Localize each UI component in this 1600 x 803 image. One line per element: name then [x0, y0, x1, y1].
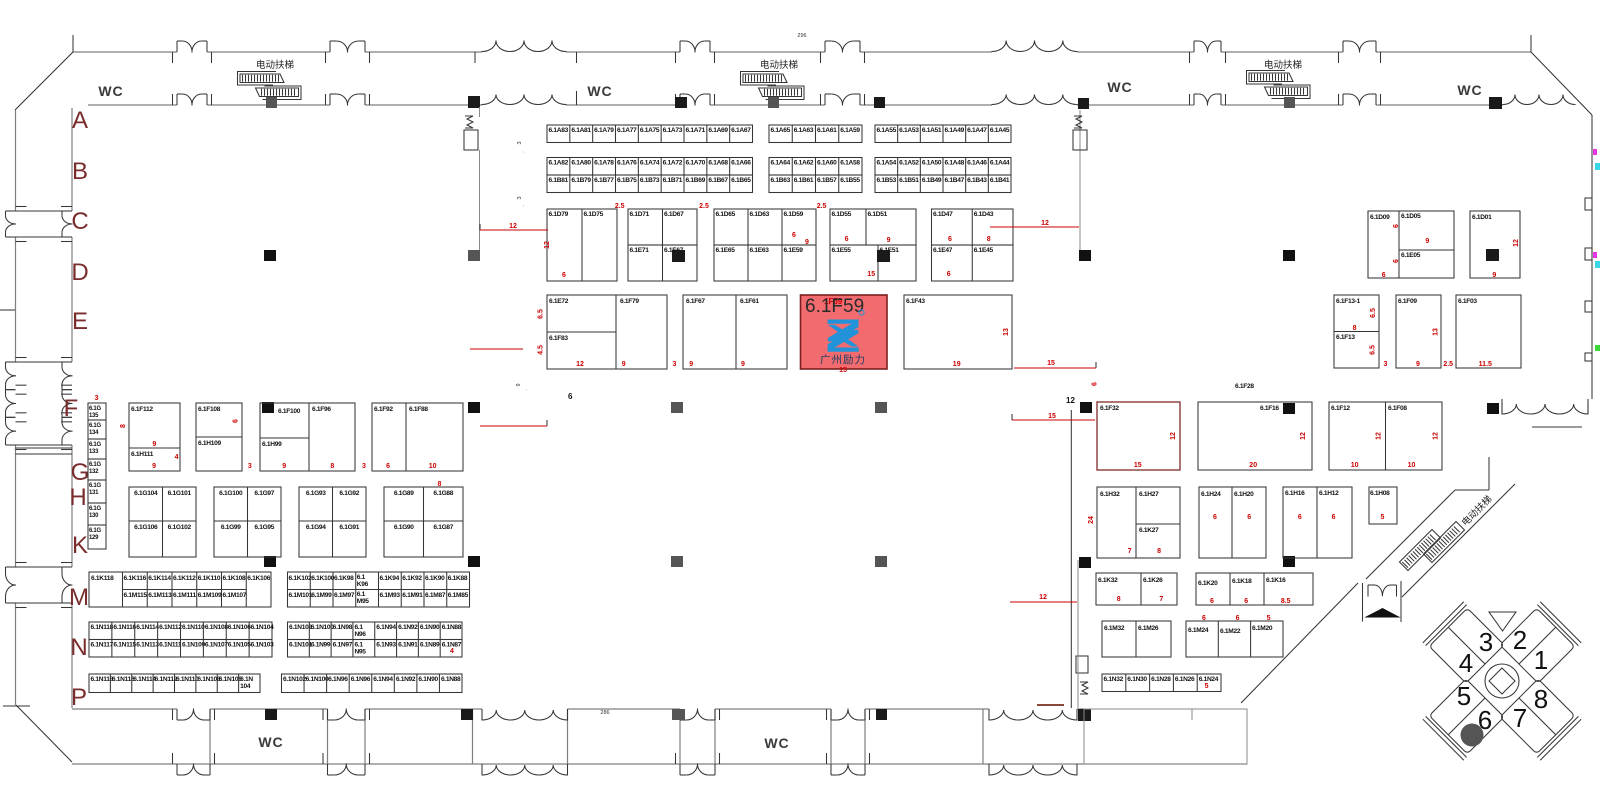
svg-text:3: 3 — [672, 361, 676, 368]
svg-text:A: A — [72, 107, 88, 134]
svg-text:6: 6 — [1247, 514, 1251, 521]
svg-text:6.1A71: 6.1A71 — [686, 127, 706, 134]
svg-text:6.1B41: 6.1B41 — [990, 177, 1010, 184]
svg-text:6.1A83: 6.1A83 — [549, 127, 569, 134]
svg-text:6.1A66: 6.1A66 — [731, 160, 751, 167]
svg-text:6.1D47: 6.1D47 — [933, 211, 953, 218]
svg-text:6.1N88: 6.1N88 — [442, 624, 462, 631]
svg-text:2: 2 — [1513, 625, 1527, 655]
svg-text:12: 12 — [1513, 239, 1520, 247]
svg-text:6.1A60: 6.1A60 — [817, 160, 837, 167]
svg-text:6.1B77: 6.1B77 — [594, 177, 614, 184]
svg-text:8: 8 — [1534, 684, 1548, 714]
svg-text:6.1E47: 6.1E47 — [933, 247, 953, 254]
svg-text:6.1B53: 6.1B53 — [877, 177, 897, 184]
svg-text:9: 9 — [741, 361, 745, 368]
svg-text:4.5: 4.5 — [537, 345, 544, 355]
svg-text:12: 12 — [544, 241, 551, 249]
svg-text:6: 6 — [568, 392, 573, 401]
svg-text:6.1G92: 6.1G92 — [339, 490, 359, 497]
svg-text:6.1D43: 6.1D43 — [974, 211, 994, 218]
svg-text:6.1M85: 6.1M85 — [448, 592, 469, 599]
svg-text:6.1E72: 6.1E72 — [549, 298, 569, 305]
svg-text:6.1E55: 6.1E55 — [832, 247, 852, 254]
svg-text:6.1M93: 6.1M93 — [380, 592, 401, 599]
svg-text:6: 6 — [1213, 514, 1217, 521]
svg-text:6.1A80: 6.1A80 — [571, 160, 591, 167]
svg-text:WC: WC — [98, 83, 123, 99]
svg-text:6.1F03: 6.1F03 — [1458, 298, 1477, 305]
svg-text:6.1G104: 6.1G104 — [134, 490, 158, 497]
svg-text:2.5: 2.5 — [817, 203, 827, 210]
svg-text:K: K — [72, 532, 88, 559]
svg-text:6.1A82: 6.1A82 — [549, 160, 569, 167]
svg-text:6.1N115: 6.1N115 — [113, 642, 136, 649]
svg-text:WC: WC — [1107, 79, 1132, 95]
svg-text:WC: WC — [258, 734, 283, 750]
svg-text:9: 9 — [622, 361, 626, 368]
svg-text:13: 13 — [1003, 328, 1010, 336]
svg-text:N96: N96 — [354, 631, 366, 638]
svg-text:6.1H12: 6.1H12 — [1319, 490, 1339, 497]
svg-text:6.1B63: 6.1B63 — [771, 177, 791, 184]
svg-text:6: 6 — [1393, 259, 1400, 263]
svg-text:6.1K94: 6.1K94 — [380, 575, 400, 582]
svg-text:19: 19 — [953, 361, 961, 368]
svg-text:129: 129 — [89, 535, 99, 541]
svg-text:6: 6 — [948, 236, 952, 243]
svg-text:6.1N94: 6.1N94 — [376, 624, 396, 631]
svg-text:6.1F100: 6.1F100 — [278, 408, 301, 415]
svg-text:6.1G: 6.1G — [89, 442, 101, 448]
svg-text:6.1K106: 6.1K106 — [247, 575, 270, 582]
svg-text:6.1D51: 6.1D51 — [868, 211, 888, 218]
svg-text:6.1B65: 6.1B65 — [731, 177, 751, 184]
svg-text:6.1N28: 6.1N28 — [1151, 676, 1171, 683]
svg-text:6.1A63: 6.1A63 — [794, 127, 814, 134]
svg-text:5: 5 — [1457, 681, 1471, 711]
svg-text:6.1H24: 6.1H24 — [1201, 491, 1221, 498]
svg-text:7: 7 — [1128, 548, 1132, 555]
svg-text:9: 9 — [152, 441, 156, 448]
svg-text:6.1N90: 6.1N90 — [420, 624, 440, 631]
svg-text:6.1G106: 6.1G106 — [134, 524, 158, 531]
svg-text:6.1K20: 6.1K20 — [1198, 580, 1218, 587]
svg-text:6.1A59: 6.1A59 — [840, 127, 860, 134]
svg-text:5: 5 — [1205, 683, 1209, 690]
svg-text:6.1K112: 6.1K112 — [173, 575, 196, 582]
svg-text:9: 9 — [282, 463, 286, 470]
svg-text:6.1N104: 6.1N104 — [251, 624, 274, 631]
svg-text:6.1M113: 6.1M113 — [148, 592, 172, 599]
svg-text:9: 9 — [689, 361, 693, 368]
svg-text:12: 12 — [1039, 594, 1047, 601]
svg-text:6.1A45: 6.1A45 — [990, 127, 1010, 134]
svg-text:6.1F61: 6.1F61 — [740, 298, 759, 305]
svg-text:H: H — [69, 484, 86, 511]
svg-text:8: 8 — [1157, 548, 1161, 555]
svg-text:6.1N: 6.1N — [240, 676, 253, 683]
svg-text:D: D — [71, 259, 88, 286]
svg-text:6: 6 — [1091, 382, 1098, 386]
svg-text:6.1F112: 6.1F112 — [131, 406, 153, 413]
svg-text:6.1F79: 6.1F79 — [620, 298, 639, 305]
svg-text:6.1K110: 6.1K110 — [198, 575, 221, 582]
svg-text:6: 6 — [232, 419, 239, 423]
svg-text:12: 12 — [1066, 396, 1075, 405]
svg-text:6.1G88: 6.1G88 — [433, 490, 453, 497]
svg-text:N: N — [70, 634, 87, 661]
svg-text:6.1D55: 6.1D55 — [832, 211, 852, 218]
svg-text:6.1A81: 6.1A81 — [571, 127, 591, 134]
svg-text:6.1B75: 6.1B75 — [617, 177, 637, 184]
svg-text:6.1E45: 6.1E45 — [974, 247, 994, 254]
svg-text:6.1H99: 6.1H99 — [262, 441, 282, 448]
svg-text:6.1G87: 6.1G87 — [433, 524, 453, 531]
svg-text:6.1A52: 6.1A52 — [899, 160, 919, 167]
svg-text:WC: WC — [1457, 82, 1482, 98]
svg-text:6: 6 — [386, 463, 390, 470]
svg-text:6.1K18: 6.1K18 — [1232, 578, 1252, 585]
svg-text:2.5: 2.5 — [699, 203, 709, 210]
svg-text:6.1N102: 6.1N102 — [283, 676, 306, 683]
svg-text:电动扶梯: 电动扶梯 — [760, 59, 799, 71]
svg-text:G: G — [71, 459, 90, 486]
svg-text:6: 6 — [1236, 615, 1240, 622]
svg-text:8: 8 — [120, 424, 127, 428]
svg-text:6.1B47: 6.1B47 — [945, 177, 965, 184]
svg-text:6.1A46: 6.1A46 — [967, 160, 987, 167]
svg-text:6.1G102: 6.1G102 — [168, 524, 192, 531]
svg-text:6.1A62: 6.1A62 — [794, 160, 814, 167]
svg-text:6.1K32: 6.1K32 — [1098, 577, 1118, 584]
svg-text:6.1B71: 6.1B71 — [663, 177, 683, 184]
svg-text:6.1F28: 6.1F28 — [1235, 383, 1254, 390]
svg-text:3: 3 — [1384, 361, 1388, 368]
svg-text:6.1F108: 6.1F108 — [198, 406, 221, 413]
svg-text:6.1: 6.1 — [354, 642, 363, 649]
svg-text:6.1N107: 6.1N107 — [205, 642, 228, 649]
svg-text:2.5: 2.5 — [1443, 361, 1453, 368]
svg-text:6.1K116: 6.1K116 — [124, 575, 147, 582]
svg-text:6.1K100: 6.1K100 — [311, 575, 334, 582]
svg-text:6.1N106: 6.1N106 — [228, 624, 251, 631]
svg-text:电动扶梯: 电动扶梯 — [256, 59, 295, 71]
svg-text:6.1H109: 6.1H109 — [198, 440, 221, 447]
svg-text:8: 8 — [1353, 325, 1357, 332]
svg-text:6.1E71: 6.1E71 — [630, 247, 650, 254]
svg-text:6.1B67: 6.1B67 — [708, 177, 728, 184]
svg-text:133: 133 — [89, 449, 99, 455]
svg-text:6.1B51: 6.1B51 — [899, 177, 919, 184]
svg-text:6.1G94: 6.1G94 — [306, 524, 326, 531]
svg-text:3: 3 — [248, 463, 252, 470]
svg-text:5: 5 — [1267, 615, 1271, 622]
svg-text:9: 9 — [516, 383, 522, 386]
svg-text:6.1G: 6.1G — [89, 528, 101, 534]
svg-text:6.1N91: 6.1N91 — [398, 642, 418, 649]
svg-text:10: 10 — [1351, 462, 1359, 469]
svg-text:10: 10 — [429, 463, 437, 470]
svg-text:286: 286 — [600, 710, 609, 716]
svg-text:6.1N97: 6.1N97 — [333, 642, 353, 649]
svg-text:6.1F88: 6.1F88 — [409, 406, 428, 413]
svg-text:6: 6 — [562, 272, 566, 279]
svg-text:6.1A49: 6.1A49 — [945, 127, 965, 134]
svg-text:6.1N32: 6.1N32 — [1104, 676, 1124, 683]
svg-text:6.1A72: 6.1A72 — [663, 160, 683, 167]
svg-text:M: M — [69, 584, 89, 611]
svg-text:2.5: 2.5 — [615, 203, 625, 210]
svg-text:6.1D01: 6.1D01 — [1472, 214, 1492, 221]
svg-text:3: 3 — [517, 196, 523, 199]
svg-text:6.1A74: 6.1A74 — [640, 160, 660, 167]
svg-text:6: 6 — [1244, 598, 1248, 605]
svg-text:6.1H20: 6.1H20 — [1234, 491, 1254, 498]
svg-text:6: 6 — [1210, 598, 1214, 605]
svg-text:6.1G: 6.1G — [89, 406, 101, 412]
svg-text:132: 132 — [89, 469, 99, 475]
svg-text:12: 12 — [1170, 432, 1177, 440]
svg-text:9: 9 — [805, 239, 809, 246]
svg-text:6.1A48: 6.1A48 — [945, 160, 965, 167]
svg-text:P: P — [71, 684, 87, 711]
svg-text:6.1E05: 6.1E05 — [1401, 252, 1421, 259]
svg-text:6.1G: 6.1G — [89, 483, 101, 489]
svg-text:6.1G95: 6.1G95 — [254, 524, 274, 531]
svg-text:6.1A55: 6.1A55 — [877, 127, 897, 134]
svg-text:7: 7 — [1513, 703, 1527, 733]
svg-text:5: 5 — [1380, 514, 1384, 521]
svg-text:6.1N94: 6.1N94 — [373, 676, 393, 683]
svg-text:6.1N116: 6.1N116 — [113, 624, 136, 631]
svg-text:9: 9 — [1416, 361, 1420, 368]
svg-text:8: 8 — [987, 236, 991, 243]
svg-text:6.1N89: 6.1N89 — [420, 642, 440, 649]
svg-text:6.1A50: 6.1A50 — [922, 160, 942, 167]
svg-text:6.1A75: 6.1A75 — [640, 127, 660, 134]
svg-text:9: 9 — [1425, 238, 1429, 245]
svg-text:6.1K114: 6.1K114 — [148, 575, 171, 582]
svg-text:6.5: 6.5 — [1370, 308, 1377, 318]
svg-text:F: F — [64, 395, 79, 422]
svg-text:3: 3 — [1479, 627, 1493, 657]
svg-text:6.1N117: 6.1N117 — [91, 642, 114, 649]
svg-text:13: 13 — [1433, 328, 1440, 336]
svg-text:6: 6 — [1332, 514, 1336, 521]
svg-text:8: 8 — [330, 463, 334, 470]
svg-text:4: 4 — [175, 454, 179, 461]
svg-text:6.1B73: 6.1B73 — [640, 177, 660, 184]
svg-text:6.1N26: 6.1N26 — [1175, 676, 1195, 683]
svg-text:6.1D09: 6.1D09 — [1370, 214, 1390, 221]
svg-text:B: B — [72, 158, 88, 185]
svg-text:3: 3 — [95, 395, 99, 402]
svg-text:6.1A54: 6.1A54 — [877, 160, 897, 167]
svg-text:6.1G: 6.1G — [89, 423, 101, 429]
svg-text:6.1G101: 6.1G101 — [168, 490, 192, 497]
svg-text:6.1K108: 6.1K108 — [223, 575, 246, 582]
svg-text:K96: K96 — [357, 581, 369, 588]
svg-text:6.1N114: 6.1N114 — [136, 624, 159, 631]
svg-text:6.1N88: 6.1N88 — [441, 676, 461, 683]
svg-text:6.1E65: 6.1E65 — [716, 247, 736, 254]
svg-text:6.1A67: 6.1A67 — [731, 127, 751, 134]
svg-text:6.1H27: 6.1H27 — [1139, 491, 1159, 498]
svg-text:4: 4 — [1459, 648, 1473, 678]
svg-text:6: 6 — [1393, 224, 1400, 228]
svg-text:6.1K90: 6.1K90 — [425, 575, 445, 582]
svg-text:6.1B49: 6.1B49 — [922, 177, 942, 184]
svg-text:6.1: 6.1 — [357, 591, 366, 598]
svg-text:12: 12 — [1300, 432, 1307, 440]
svg-text:6.1B43: 6.1B43 — [967, 177, 987, 184]
svg-text:6.1A58: 6.1A58 — [840, 160, 860, 167]
svg-text:6.1K16: 6.1K16 — [1266, 577, 1286, 584]
svg-text:6.1M99: 6.1M99 — [311, 592, 332, 599]
svg-text:6.1N109: 6.1N109 — [182, 642, 205, 649]
svg-text:6.1N100: 6.1N100 — [306, 676, 329, 683]
svg-text:6.1A47: 6.1A47 — [967, 127, 987, 134]
svg-text:6.1F13-1: 6.1F13-1 — [1336, 298, 1361, 305]
svg-text:6.1N93: 6.1N93 — [376, 642, 396, 649]
svg-text:6.1H16: 6.1H16 — [1285, 490, 1305, 497]
svg-text:6.1: 6.1 — [357, 574, 366, 581]
svg-text:6.1M109: 6.1M109 — [198, 592, 222, 599]
svg-text:6.1M97: 6.1M97 — [334, 592, 355, 599]
svg-text:6.1F96: 6.1F96 — [312, 406, 331, 413]
svg-text:6.1M87: 6.1M87 — [425, 592, 446, 599]
svg-text:6.1A77: 6.1A77 — [617, 127, 637, 134]
svg-text:15: 15 — [839, 367, 847, 374]
svg-text:6: 6 — [845, 236, 849, 243]
svg-text:15: 15 — [1134, 462, 1142, 469]
svg-text:WC: WC — [587, 83, 612, 99]
svg-text:8.5: 8.5 — [1281, 598, 1291, 605]
svg-text:131: 131 — [89, 490, 99, 496]
svg-text:6.1N103: 6.1N103 — [251, 642, 274, 649]
svg-text:6.1M115: 6.1M115 — [124, 592, 148, 599]
svg-text:6.1K88: 6.1K88 — [448, 575, 468, 582]
svg-text:6.1B57: 6.1B57 — [817, 177, 837, 184]
svg-text:6.1F16: 6.1F16 — [1260, 405, 1279, 412]
svg-text:3: 3 — [517, 141, 523, 144]
svg-text:6.1H32: 6.1H32 — [1100, 491, 1120, 498]
svg-text:6: 6 — [947, 271, 951, 278]
svg-text:135: 135 — [89, 413, 99, 419]
svg-text:6.1D63: 6.1D63 — [750, 211, 770, 218]
svg-text:12: 12 — [576, 361, 584, 368]
svg-text:6.1A76: 6.1A76 — [617, 160, 637, 167]
svg-text:E: E — [72, 308, 88, 335]
svg-text:6.1N108: 6.1N108 — [205, 624, 228, 631]
svg-text:6.1D05: 6.1D05 — [1401, 213, 1421, 220]
svg-text:6.1E59: 6.1E59 — [784, 247, 804, 254]
svg-text:24: 24 — [1088, 516, 1095, 524]
svg-text:6.1N113: 6.1N113 — [136, 642, 159, 649]
svg-text:7: 7 — [1159, 596, 1163, 603]
svg-text:C: C — [71, 208, 88, 235]
svg-text:130: 130 — [89, 513, 99, 519]
svg-text:6.1N112: 6.1N112 — [159, 624, 182, 631]
svg-text:6: 6 — [792, 232, 796, 239]
svg-text:11.5: 11.5 — [1479, 361, 1492, 368]
svg-text:6.1D59: 6.1D59 — [784, 211, 804, 218]
svg-text:6.1F32: 6.1F32 — [1100, 405, 1119, 412]
svg-text:6.1D75: 6.1D75 — [584, 211, 604, 218]
svg-text:8: 8 — [1117, 596, 1121, 603]
svg-text:6.1D71: 6.1D71 — [630, 211, 650, 218]
svg-text:6.1B69: 6.1B69 — [686, 177, 706, 184]
svg-text:1: 1 — [1534, 645, 1548, 675]
svg-text:6.1F12: 6.1F12 — [1331, 405, 1350, 412]
svg-text:6.1D67: 6.1D67 — [664, 211, 684, 218]
svg-text:6.1B55: 6.1B55 — [840, 177, 860, 184]
svg-text:15: 15 — [867, 271, 875, 278]
svg-text:6.1K102: 6.1K102 — [289, 575, 312, 582]
svg-text:6.1N24: 6.1N24 — [1199, 676, 1219, 683]
svg-text:6.1E63: 6.1E63 — [750, 247, 770, 254]
svg-text:6.1M91: 6.1M91 — [402, 592, 423, 599]
svg-text:6.1A79: 6.1A79 — [594, 127, 614, 134]
svg-text:6.1H111: 6.1H111 — [131, 451, 154, 458]
svg-text:6.1D65: 6.1D65 — [716, 211, 736, 218]
svg-text:6.1A68: 6.1A68 — [708, 160, 728, 167]
svg-text:6.1M101: 6.1M101 — [289, 592, 313, 599]
svg-text:104: 104 — [240, 683, 251, 690]
svg-text:6.1G99: 6.1G99 — [221, 524, 241, 531]
svg-text:6.1M32: 6.1M32 — [1104, 625, 1125, 632]
svg-text:15: 15 — [1047, 360, 1055, 367]
svg-text:6.1: 6.1 — [354, 624, 363, 631]
svg-text:6.1K118: 6.1K118 — [91, 575, 114, 582]
svg-text:6.1F09: 6.1F09 — [1398, 298, 1417, 305]
svg-text:6.5: 6.5 — [1369, 345, 1376, 355]
svg-text:6.1K92: 6.1K92 — [402, 575, 422, 582]
svg-text:9: 9 — [152, 463, 156, 470]
svg-text:6.1K27: 6.1K27 — [1139, 527, 1159, 534]
svg-text:9: 9 — [887, 237, 891, 244]
svg-text:6.1G93: 6.1G93 — [306, 490, 326, 497]
svg-text:6.1A69: 6.1A69 — [708, 127, 728, 134]
svg-text:6.1D79: 6.1D79 — [549, 211, 569, 218]
svg-text:6.1G: 6.1G — [89, 462, 101, 468]
svg-text:12: 12 — [1433, 432, 1440, 440]
svg-text:6.1K98: 6.1K98 — [334, 575, 354, 582]
svg-text:M95: M95 — [357, 598, 370, 605]
svg-text:6.5: 6.5 — [537, 309, 544, 319]
svg-text:6.1N118: 6.1N118 — [91, 624, 114, 631]
svg-text:WC: WC — [764, 735, 789, 751]
svg-text:6: 6 — [1478, 705, 1492, 735]
svg-text:12: 12 — [509, 223, 517, 230]
svg-text:6.1H08: 6.1H08 — [1370, 490, 1390, 497]
svg-text:6.1G100: 6.1G100 — [219, 490, 243, 497]
svg-text:6.1F92: 6.1F92 — [374, 406, 393, 413]
svg-text:广州励力: 广州励力 — [820, 353, 866, 366]
svg-text:6.1A51: 6.1A51 — [922, 127, 942, 134]
svg-text:6.1N110: 6.1N110 — [182, 624, 205, 631]
svg-text:8: 8 — [438, 481, 442, 488]
svg-text:6.1N105: 6.1N105 — [228, 642, 251, 649]
svg-text:6.1N96: 6.1N96 — [328, 676, 348, 683]
svg-text:296: 296 — [797, 33, 806, 39]
svg-text:6.1A61: 6.1A61 — [817, 127, 837, 134]
svg-text:6.1B81: 6.1B81 — [549, 177, 569, 184]
svg-text:10: 10 — [1408, 462, 1416, 469]
svg-text:6.1A53: 6.1A53 — [899, 127, 919, 134]
svg-text:3: 3 — [362, 463, 366, 470]
